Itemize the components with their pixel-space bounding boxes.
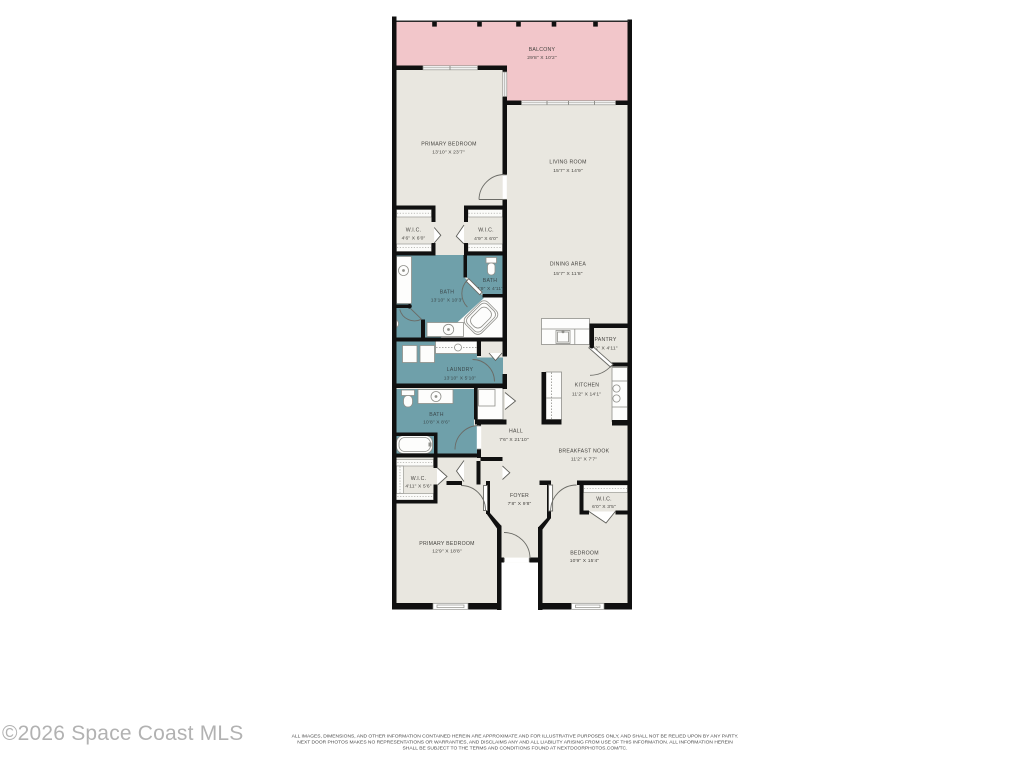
svg-text:PANTRY: PANTRY: [594, 337, 616, 343]
svg-text:W.I.C.: W.I.C.: [596, 497, 612, 503]
svg-text:4'11" X 5'6": 4'11" X 5'6": [405, 484, 431, 490]
svg-text:7'6" X 21'10": 7'6" X 21'10": [499, 437, 529, 443]
svg-text:PRIMARY BEDROOM: PRIMARY BEDROOM: [421, 142, 476, 148]
svg-text:11'2" X 14'1": 11'2" X 14'1": [572, 392, 601, 398]
svg-text:NEXT DOOR PHOTOS MAKES NO REPR: NEXT DOOR PHOTOS MAKES NO REPRESENTATION…: [297, 740, 733, 746]
svg-text:ALL IMAGES, DIMENSIONS, AND OT: ALL IMAGES, DIMENSIONS, AND OTHER INFORM…: [292, 734, 739, 740]
svg-text:LAUNDRY: LAUNDRY: [447, 367, 474, 373]
svg-text:10'8" X 8'6": 10'8" X 8'6": [423, 420, 450, 426]
svg-text:SHALL BE SUBJECT TO THE TERMS: SHALL BE SUBJECT TO THE TERMS AND CONDIT…: [403, 746, 628, 752]
svg-text:HALL: HALL: [509, 429, 523, 435]
svg-text:6'0" X 3'5": 6'0" X 3'5": [592, 504, 616, 510]
svg-text:29'8" X 10'2": 29'8" X 10'2": [527, 55, 557, 61]
svg-text:BEDROOM: BEDROOM: [570, 551, 599, 557]
svg-text:10'9" X 15'4": 10'9" X 15'4": [570, 558, 600, 564]
svg-text:FOYER: FOYER: [510, 493, 529, 499]
svg-text:W.I.C.: W.I.C.: [478, 228, 494, 234]
svg-text:4'6" X 6'0": 4'6" X 6'0": [402, 236, 426, 242]
svg-text:12'9" X 18'8": 12'9" X 18'8": [432, 549, 462, 555]
svg-text:W.I.C.: W.I.C.: [411, 476, 427, 482]
svg-text:W.I.C.: W.I.C.: [406, 228, 422, 234]
svg-text:LIVING ROOM: LIVING ROOM: [549, 160, 586, 166]
svg-text:15'7" X 14'9": 15'7" X 14'9": [553, 168, 583, 174]
svg-text:KITCHEN: KITCHEN: [575, 383, 600, 389]
svg-text:13'10" X 23'7": 13'10" X 23'7": [432, 150, 465, 156]
svg-text:BATH: BATH: [440, 290, 454, 296]
svg-text:15'7" X 11'8": 15'7" X 11'8": [553, 271, 582, 277]
svg-text:4'9" X 6'0": 4'9" X 6'0": [474, 236, 498, 242]
svg-text:PRIMARY BEDROOM: PRIMARY BEDROOM: [419, 541, 474, 547]
svg-text:BALCONY: BALCONY: [529, 47, 556, 53]
svg-text:©2026 Space Coast MLS: ©2026 Space Coast MLS: [2, 722, 243, 745]
svg-text:BATH: BATH: [429, 412, 443, 418]
svg-text:13'10" X 5'10": 13'10" X 5'10": [444, 376, 477, 382]
svg-text:11'2" X 7'7": 11'2" X 7'7": [571, 457, 597, 463]
svg-text:BATH: BATH: [483, 278, 497, 284]
svg-text:7'8" X 9'8": 7'8" X 9'8": [508, 501, 532, 507]
svg-text:13'10" X 10'3": 13'10" X 10'3": [431, 298, 464, 304]
svg-text:DINING AREA: DINING AREA: [550, 262, 586, 268]
svg-text:BREAKFAST NOOK: BREAKFAST NOOK: [559, 449, 610, 455]
